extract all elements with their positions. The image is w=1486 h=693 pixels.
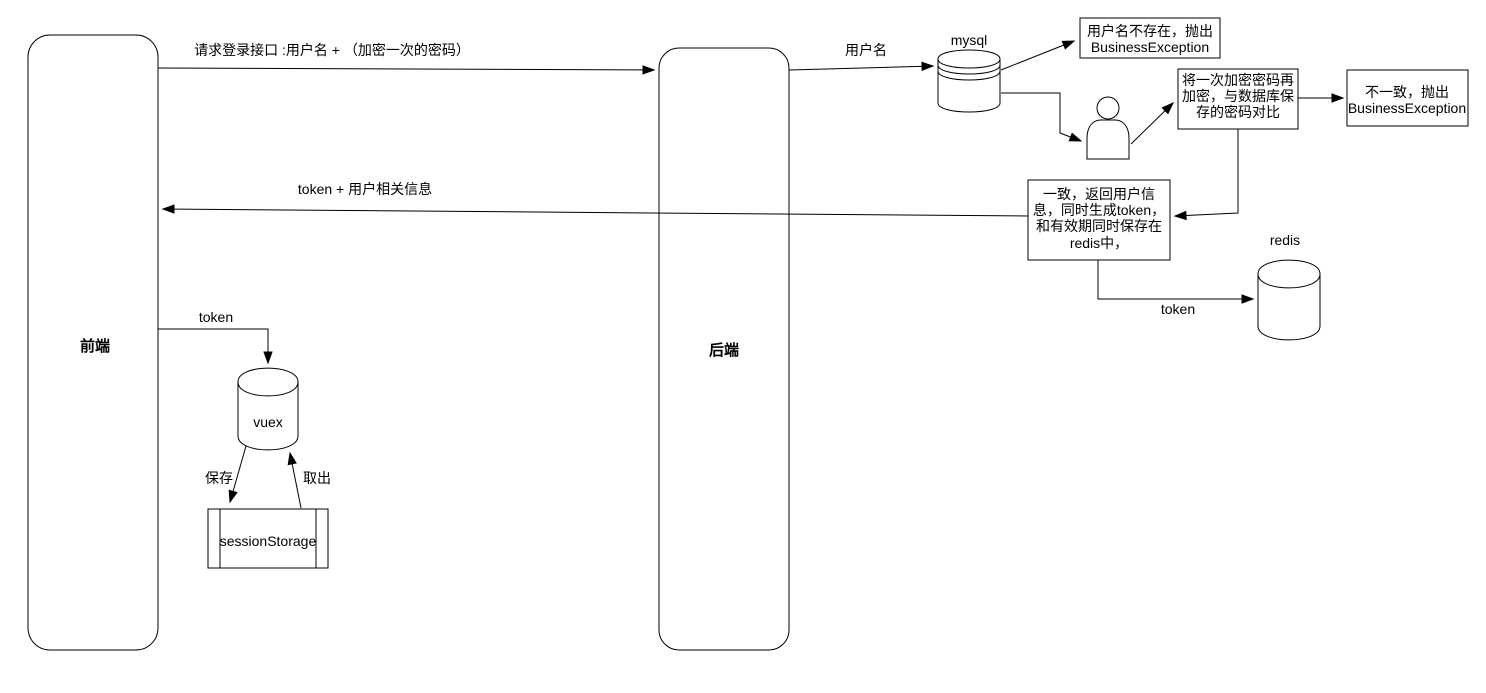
arrow-line [1098, 260, 1253, 299]
edge-login-request: 请求登录接口 :用户名 + （加密一次的密码） [158, 42, 654, 70]
arrow-line [290, 453, 301, 508]
edge-token-to-vuex: token [158, 309, 268, 363]
username-not-exist-box: 用户名不存在，抛出 BusinessException [1080, 18, 1220, 58]
redis-label: redis [1270, 232, 1300, 248]
edge-label: token [199, 309, 233, 325]
edge-label: token + 用户相关信息 [298, 181, 432, 197]
match-return-token-box: 一致，返回用户信 息，同时生成token， 和有效期同时保存在 redis中， [1028, 180, 1170, 260]
redis-database: redis [1258, 232, 1320, 340]
edge-load-from-session: 取出 [290, 453, 331, 508]
box-text-line: 将一次加密密码再 [1182, 72, 1294, 88]
box-text-line: BusinessException [1348, 100, 1466, 116]
vuex-store: vuex [238, 368, 298, 450]
edge-label: token [1161, 301, 1195, 317]
arrow-line [1131, 103, 1173, 144]
box-text-line: 不一致，抛出 [1365, 84, 1449, 100]
password-mismatch-box: 不一致，抛出 BusinessException [1347, 70, 1468, 126]
arrow-line [789, 66, 933, 70]
session-storage-label: sessionStorage [220, 533, 317, 549]
frontend-label: 前端 [80, 337, 110, 355]
box-text-line: 存的密码对比 [1196, 104, 1280, 120]
arrow-line [1001, 41, 1074, 70]
database-cylinder-icon [238, 368, 298, 450]
vuex-label: vuex [253, 414, 283, 430]
reencrypt-compare-box: 将一次加密密码再 加密，与数据库保 存的密码对比 [1178, 69, 1298, 129]
mysql-label: mysql [951, 32, 988, 48]
edge-token-to-redis: token [1098, 260, 1253, 317]
arrow-line [158, 329, 268, 363]
box-text-line: redis中， [1070, 235, 1128, 251]
box-text-line: 息，同时生成token， [1033, 202, 1165, 218]
arrow-line [1001, 93, 1081, 141]
box-text-line: 加密，与数据库保 [1182, 88, 1294, 104]
edge-label: 取出 [303, 470, 331, 486]
edge-label: 保存 [205, 470, 233, 486]
edge-token-return: token + 用户相关信息 [163, 181, 1028, 216]
person-icon [1087, 97, 1129, 159]
arrow-line [163, 209, 1028, 216]
edge-save-to-session: 保存 [205, 446, 246, 502]
database-cylinder-icon [1258, 260, 1320, 340]
session-storage-box: sessionStorage [208, 509, 328, 568]
edge-mysql-to-person [1001, 93, 1081, 141]
backend-lifeline: 后端 [659, 48, 789, 650]
backend-label: 后端 [709, 341, 739, 359]
box-text-line: 一致，返回用户信 [1043, 186, 1155, 202]
diagram-canvas: 前端 后端 mysql 用户名不存在，抛出 BusinessException … [0, 0, 1486, 693]
person-body-icon [1087, 120, 1129, 159]
box-text-line: BusinessException [1091, 39, 1209, 55]
database-cylinder-icon [938, 50, 1000, 112]
arrow-line [158, 68, 654, 70]
edge-compare-to-match [1175, 129, 1238, 216]
edge-person-to-compare [1131, 103, 1173, 144]
mysql-database: mysql [938, 32, 1000, 112]
box-text-line: 用户名不存在，抛出 [1087, 23, 1213, 39]
edge-label: 请求登录接口 :用户名 + （加密一次的密码） [194, 42, 470, 58]
person-head-icon [1097, 97, 1119, 119]
edge-mysql-to-not-exist [1001, 41, 1074, 70]
arrow-line [1175, 129, 1238, 216]
frontend-lifeline: 前端 [28, 35, 158, 650]
box-text-line: 和有效期同时保存在 [1036, 218, 1162, 234]
edge-label: 用户名 [845, 42, 887, 58]
edge-username-query: 用户名 [789, 42, 933, 70]
